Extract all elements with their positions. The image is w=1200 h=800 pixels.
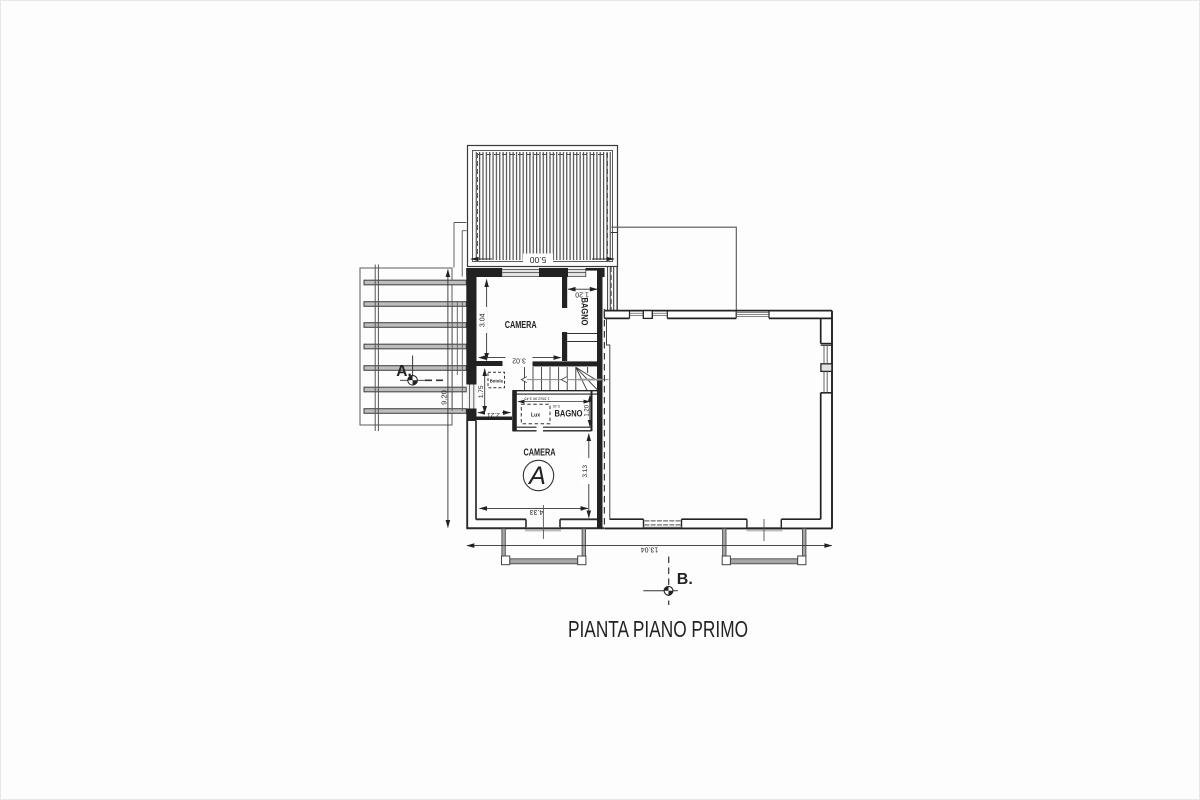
svg-text:9.20: 9.20: [439, 390, 448, 405]
svg-text:Lux: Lux: [531, 412, 540, 418]
svg-text:Botola: Botola: [490, 378, 504, 383]
svg-text:BAGNO: BAGNO: [580, 298, 590, 326]
svg-text:1.50x2.90 3.45: 1.50x2.90 3.45: [524, 396, 549, 400]
svg-text:BAGNO: BAGNO: [555, 409, 583, 419]
svg-text:4.33: 4.33: [530, 508, 544, 515]
svg-text:PIANTA PIANO PRIMO: PIANTA PIANO PRIMO: [568, 616, 748, 642]
svg-text:1.20: 1.20: [575, 290, 589, 297]
svg-text:3.02: 3.02: [512, 356, 526, 363]
svg-text:CAMERA: CAMERA: [524, 448, 556, 459]
svg-text:A.: A.: [396, 363, 412, 380]
svg-text:1.20: 1.20: [584, 404, 590, 416]
svg-text:3.13: 3.13: [582, 465, 589, 478]
svg-text:3.04: 3.04: [480, 313, 487, 327]
svg-text:5.00: 5.00: [529, 255, 546, 265]
svg-text:3.10: 3.10: [553, 404, 560, 408]
svg-text:1.75: 1.75: [478, 385, 485, 398]
svg-text:A: A: [527, 462, 546, 490]
svg-text:13.04: 13.04: [641, 546, 659, 553]
svg-text:CAMERA: CAMERA: [505, 320, 537, 331]
svg-text:B.: B.: [677, 571, 693, 588]
